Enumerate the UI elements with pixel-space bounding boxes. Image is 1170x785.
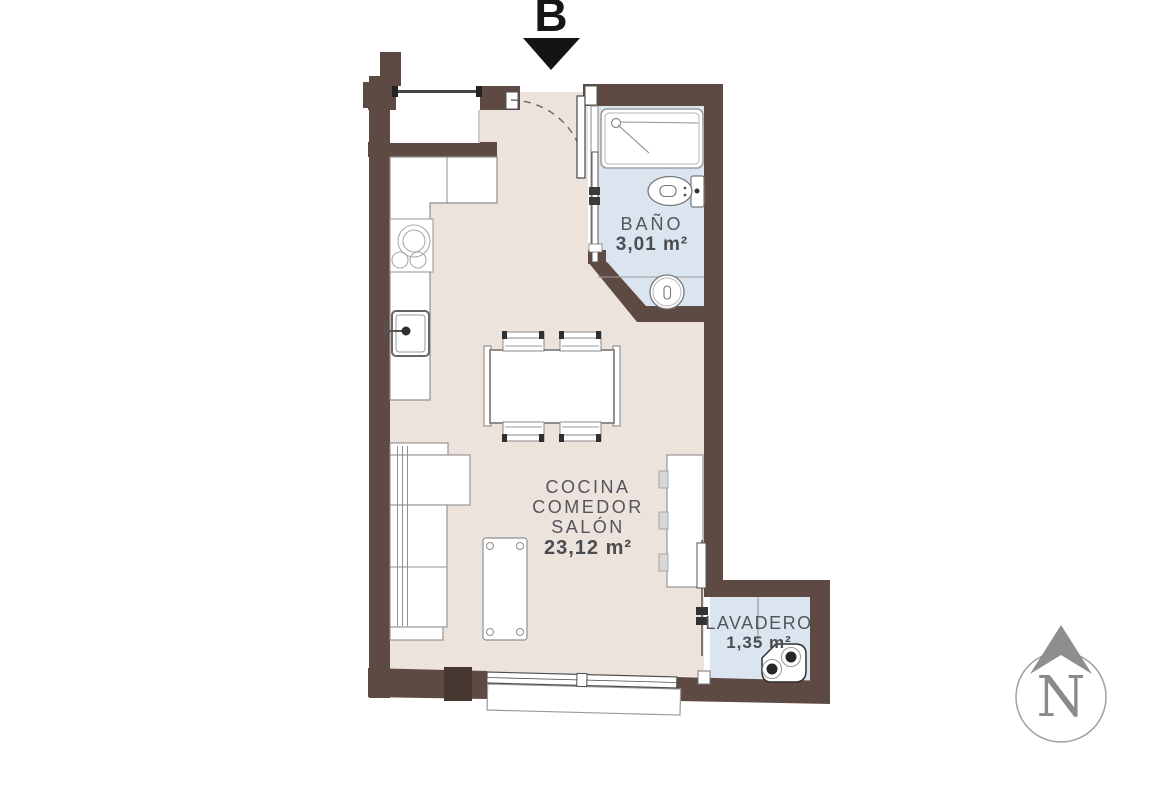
- entrance-door-leaf: [577, 96, 585, 178]
- living-name-line2: COMEDOR: [532, 497, 644, 517]
- left-wall: [369, 76, 390, 698]
- floorplan-drawing: [0, 0, 1170, 785]
- living-label: COCINA COMEDOR SALÓN 23,12 m²: [532, 477, 644, 559]
- laundry-right-wall: [810, 580, 830, 684]
- kitchen-window-jamb-left: [392, 86, 398, 97]
- kitchen-window-jamb-right: [476, 86, 482, 97]
- living-area: 23,12 m²: [532, 537, 644, 559]
- living-name-line1: COCINA: [532, 477, 644, 497]
- top-wall-right: [583, 84, 723, 106]
- bathroom-door-jamb: [589, 244, 602, 252]
- dining-table-icon: [484, 346, 620, 426]
- chair-icon-bottom-right: [559, 422, 601, 442]
- tv-unit-icon: [659, 455, 703, 587]
- cooktop-icon: [390, 219, 433, 272]
- window-sill: [487, 684, 681, 715]
- bathroom-label: BAÑO 3,01 m²: [616, 214, 688, 256]
- bathroom-area: 3,01 m²: [616, 234, 688, 256]
- bottom-wall-column: [444, 667, 472, 701]
- kitchen-window-reveal: [390, 110, 480, 143]
- laundry-area: 1,35 m²: [705, 633, 812, 652]
- laundry-label: LAVADERO 1,35 m²: [705, 614, 812, 652]
- entrance-jamb-right: [585, 86, 597, 105]
- kitchen-window: [390, 86, 482, 143]
- unit-label: B: [534, 0, 567, 38]
- balcony-window-mullion: [577, 673, 587, 686]
- laundry-door-jamb: [698, 671, 710, 684]
- bathroom-name: BAÑO: [616, 214, 688, 234]
- compass-north-label: N: [1037, 670, 1086, 726]
- bathroom-door-handle-bottom: [589, 197, 600, 205]
- laundry-door-leaf: [697, 543, 706, 588]
- chair-icon-bottom-left: [502, 422, 544, 442]
- toilet-icon: [648, 176, 704, 207]
- shower-icon: [601, 109, 703, 168]
- top-left-wall-stub: [380, 52, 401, 86]
- balcony-window: [486, 671, 681, 715]
- kitchen-band-block: [473, 142, 497, 157]
- chair-icon-top-left: [502, 331, 544, 351]
- kitchen-window-glass: [396, 90, 480, 93]
- coffee-table-icon: [483, 538, 527, 640]
- entrance-arrow-icon: [523, 38, 580, 70]
- bathroom-door-handle-top: [589, 187, 600, 195]
- floorplan-page: B BAÑO 3,01 m² COCINA COMEDOR SALÓN 23,1…: [0, 0, 1170, 785]
- laundry-name: LAVADERO: [705, 614, 812, 633]
- living-name-line3: SALÓN: [532, 517, 644, 537]
- kitchen-window-opening: [396, 86, 480, 110]
- chair-icon-top-right: [559, 331, 601, 351]
- right-wall: [704, 84, 723, 597]
